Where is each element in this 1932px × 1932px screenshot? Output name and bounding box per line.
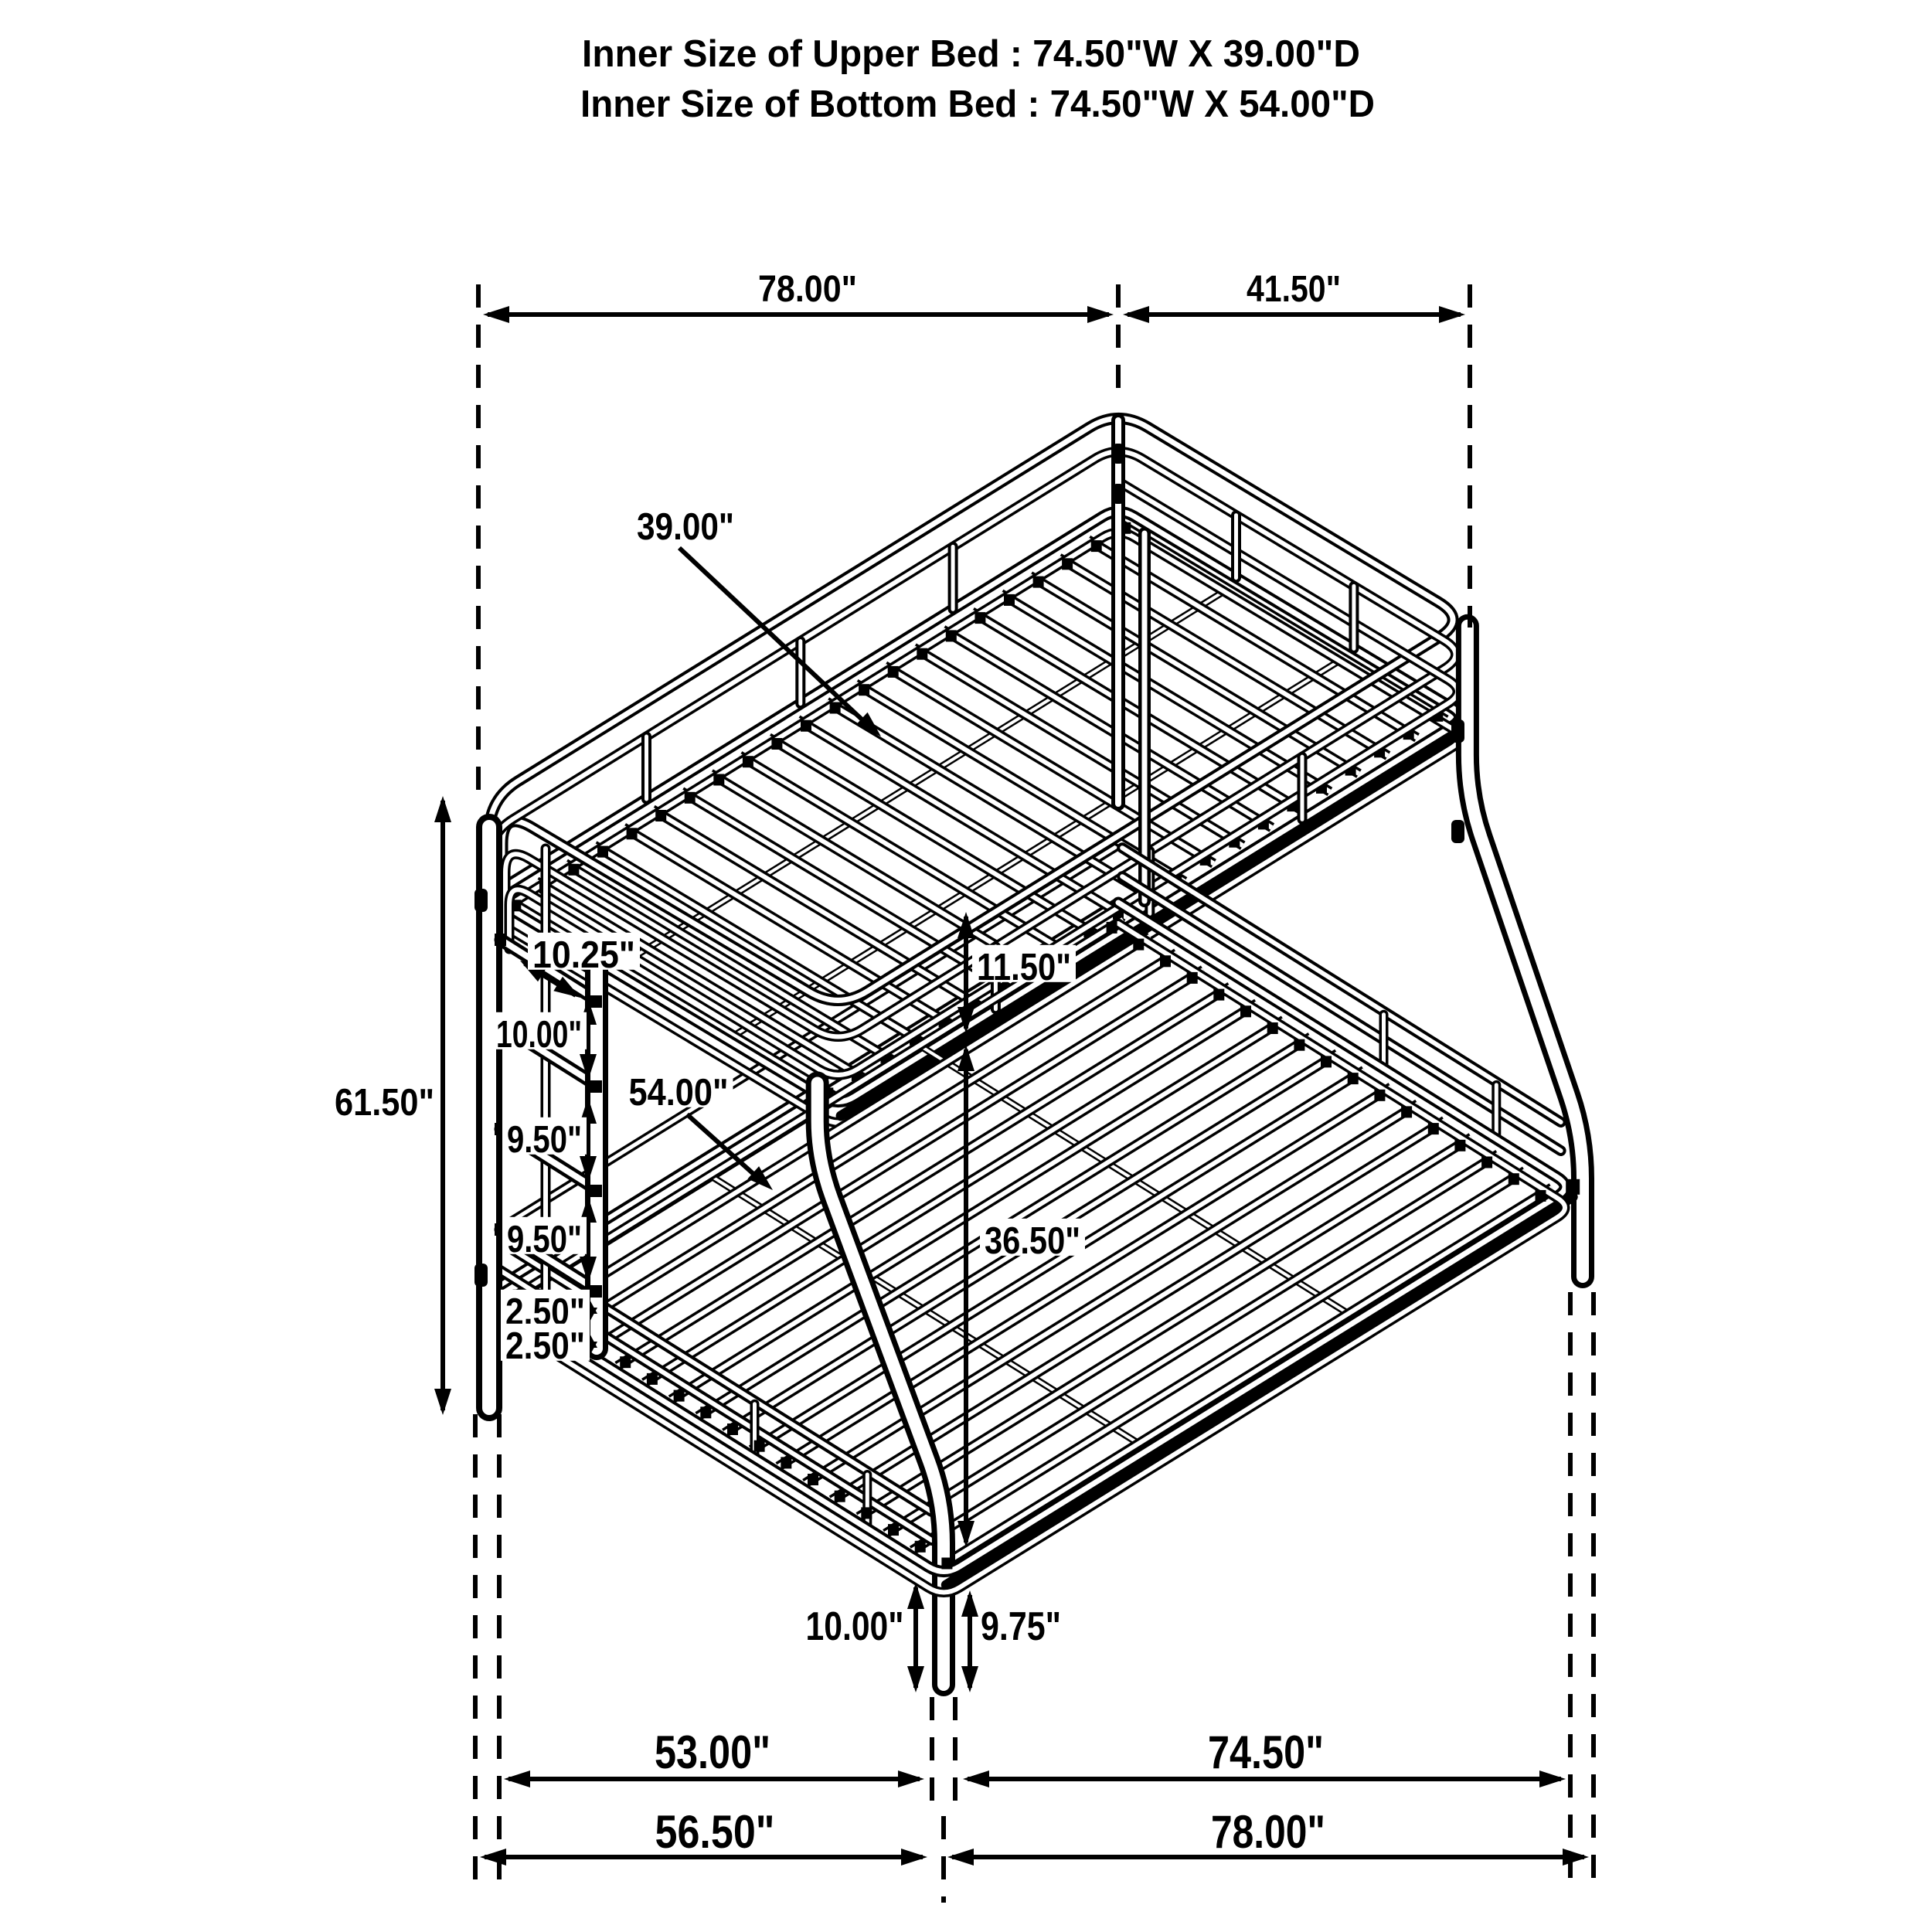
svg-text:78.00": 78.00" [1211, 1806, 1325, 1858]
svg-text:9.75": 9.75" [981, 1604, 1061, 1649]
svg-text:11.50": 11.50" [977, 947, 1071, 988]
svg-text:61.50": 61.50" [335, 1082, 434, 1124]
svg-text:2.50": 2.50" [505, 1325, 585, 1367]
svg-text:Inner Size of Bottom Bed : 74.: Inner Size of Bottom Bed : 74.50"W X 54.… [580, 83, 1375, 125]
svg-text:Inner Size of Upper Bed : 74.5: Inner Size of Upper Bed : 74.50"W X 39.0… [582, 33, 1360, 75]
svg-text:9.50": 9.50" [507, 1219, 582, 1260]
svg-text:39.00": 39.00" [637, 506, 734, 548]
svg-text:10.25": 10.25" [532, 934, 635, 976]
svg-text:54.00": 54.00" [629, 1072, 729, 1114]
svg-text:36.50": 36.50" [985, 1220, 1080, 1262]
svg-text:41.50": 41.50" [1247, 269, 1341, 310]
svg-text:78.00": 78.00" [758, 269, 857, 310]
svg-text:74.50": 74.50" [1208, 1726, 1324, 1778]
svg-text:53.00": 53.00" [655, 1726, 770, 1778]
svg-text:10.00": 10.00" [496, 1014, 582, 1056]
svg-text:10.00": 10.00" [806, 1604, 904, 1649]
svg-text:9.50": 9.50" [507, 1119, 582, 1161]
svg-text:56.50": 56.50" [655, 1806, 775, 1858]
